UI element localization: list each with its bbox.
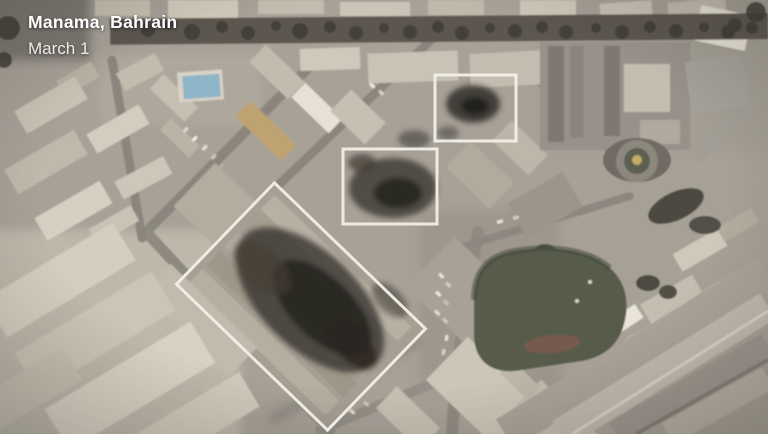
vignette-overlay	[0, 0, 768, 434]
date-label: March 1	[28, 39, 177, 59]
satellite-scene	[0, 0, 768, 434]
location-label: Manama, Bahrain	[28, 12, 177, 33]
caption: Manama, Bahrain March 1	[28, 12, 177, 59]
satellite-view: Manama, Bahrain March 1	[0, 0, 768, 434]
